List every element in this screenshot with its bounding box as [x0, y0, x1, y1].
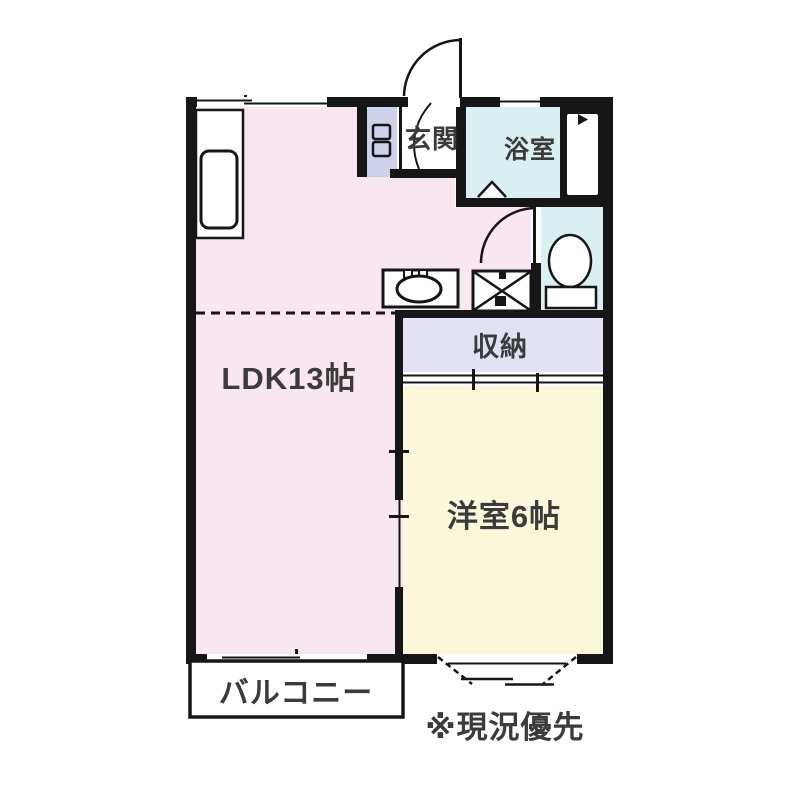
- water-heater: [566, 113, 599, 196]
- wall-ldk-western-lower: [395, 587, 403, 654]
- wall-entrance-left: [357, 107, 367, 177]
- wall-left: [186, 97, 196, 664]
- entrance-label: 玄関: [405, 124, 459, 154]
- balcony-label: バルコニー: [219, 677, 373, 710]
- floor-plan-page: 玄関 浴室 収納 LDK13帖 洋室6帖 バルコニー ※現況優先: [0, 0, 800, 800]
- top-left-window-gap: [197, 97, 327, 107]
- closet-label: 収納: [472, 331, 528, 362]
- closet-door-tick-1: [472, 369, 475, 390]
- washing-pan-tap: [499, 272, 506, 279]
- toilet-bowl: [549, 235, 591, 287]
- toilet-door-leaf: [533, 207, 536, 264]
- floor-plan-drawing: 玄関 浴室 収納 LDK13帖 洋室6帖 バルコニー ※現況優先: [0, 0, 800, 800]
- entrance-door-leaf: [459, 38, 462, 98]
- western-room-label: 洋室6帖: [447, 499, 561, 534]
- entrance-frame-line: [399, 107, 402, 171]
- wall-entrance-bathroom: [456, 107, 466, 207]
- ldk-label: LDK13帖: [221, 361, 356, 396]
- toilet-tank: [546, 287, 596, 308]
- bathroom-label: 浴室: [504, 135, 556, 164]
- washing-pan-drain: [495, 296, 506, 306]
- kitchen-sink: [397, 276, 441, 302]
- door-frame-tick-1: [389, 450, 409, 453]
- entrance-door-gap: [408, 97, 460, 107]
- closet-door-band: [403, 372, 603, 386]
- wall-ldk-western-upper: [395, 313, 403, 500]
- wall-right: [603, 97, 613, 664]
- note-text: ※現況優先: [425, 710, 584, 745]
- kitchen-counter-basin: [201, 151, 237, 228]
